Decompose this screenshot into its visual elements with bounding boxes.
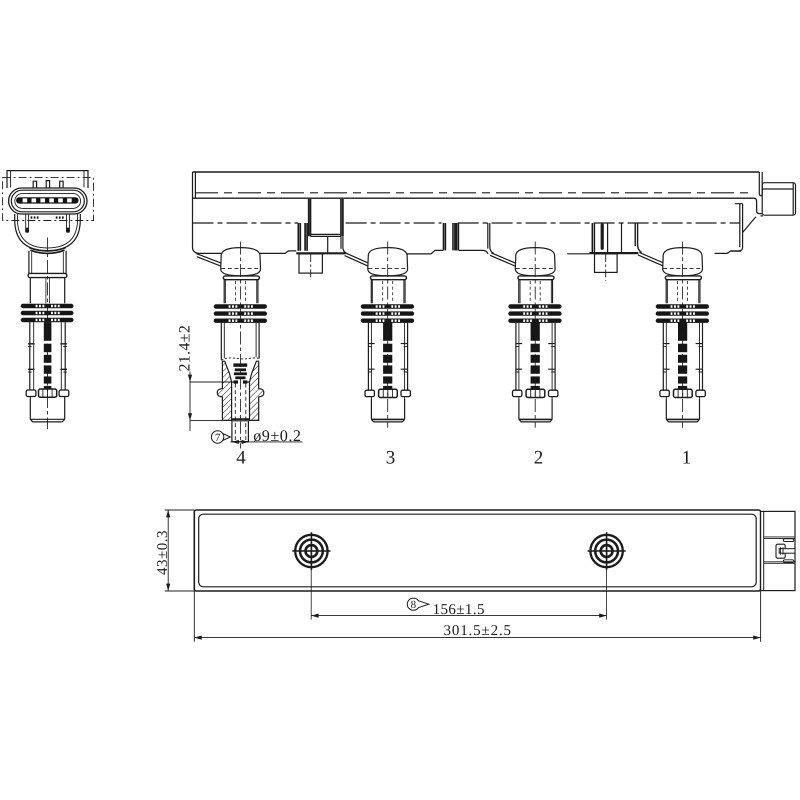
- svg-text:4: 4: [236, 448, 246, 469]
- svg-text:301.5±2.5: 301.5±2.5: [444, 623, 512, 639]
- svg-text:ø9±0.2: ø9±0.2: [253, 427, 301, 445]
- svg-text:1: 1: [682, 448, 692, 469]
- svg-text:156±1.5: 156±1.5: [433, 602, 485, 618]
- svg-text:3: 3: [386, 448, 396, 469]
- svg-text:43±0.3: 43±0.3: [155, 530, 171, 575]
- svg-text:2: 2: [534, 448, 544, 469]
- svg-text:21.4±2: 21.4±2: [177, 325, 194, 372]
- svg-text:7: 7: [215, 432, 221, 444]
- svg-text:8: 8: [411, 599, 417, 611]
